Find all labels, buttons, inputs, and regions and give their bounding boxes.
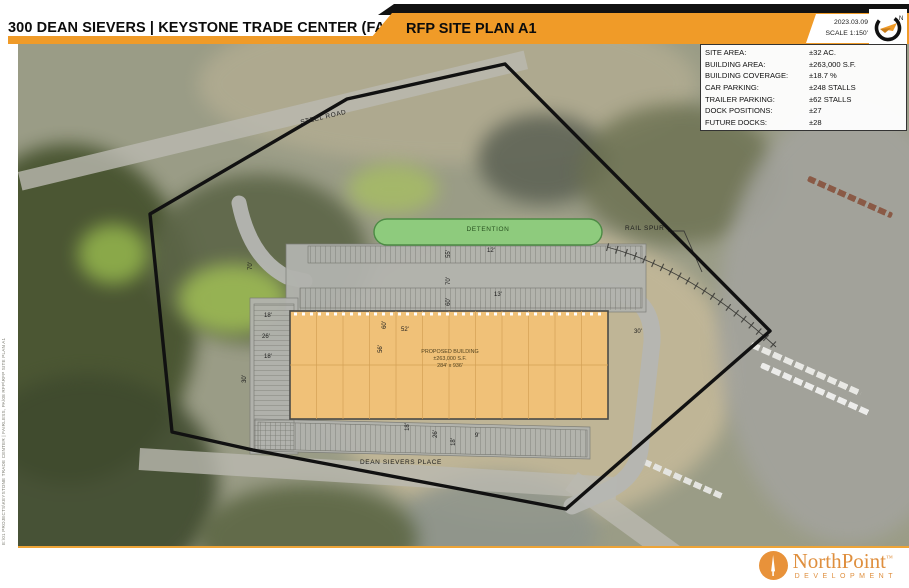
site-data-table: SITE AREA: ±32 AC. BUILDING AREA: ±263,0… [700,44,907,131]
plan-scale: SCALE 1:150' [826,29,868,39]
dim-label: 18' [405,423,411,431]
footer-bar: NorthPoint™ DEVELOPMENT [0,548,909,588]
dim-label: 26' [262,334,270,340]
plan-banner-text: RFP SITE PLAN A1 [406,21,537,37]
dim-label: 18' [264,313,272,319]
row-value: ±248 STALLS [809,83,856,92]
dim-label: 30' [242,375,248,383]
dim-label: 18' [264,354,272,360]
row-value: ±28 [809,118,822,127]
table-row: SITE AREA: ±32 AC. [701,47,906,59]
row-label: CAR PARKING: [701,83,809,92]
table-row: BUILDING COVERAGE: ±18.7 % [701,70,906,82]
dim-label: 70' [446,277,452,285]
dim-label: 55' [446,250,452,258]
row-value: ±263,000 S.F. [809,60,856,69]
row-label: DOCK POSITIONS: [701,106,809,115]
title-underline-bar [8,36,386,44]
row-label: BUILDING COVERAGE: [701,71,809,80]
dean-sievers-label: DEAN SIEVERS PLACE [360,459,442,466]
row-value: ±32 AC. [809,48,836,57]
dim-label: 9' [475,433,479,439]
row-value: ±62 STALLS [809,95,851,104]
sheet-file-note: E:\01 PROJECTS\KEYSTONE TRADE CENTER | F… [1,285,6,545]
northpoint-logo-text: NorthPoint™ DEVELOPMENT [793,551,897,580]
dim-label: 30' [634,329,642,335]
monument-icon [768,555,779,576]
rail-spur-label: RAIL SPUR [625,225,664,232]
row-label: BUILDING AREA: [701,60,809,69]
algae-patch-3 [348,164,438,214]
row-label: FUTURE DOCKS: [701,118,809,127]
date-scale-box: 2023.03.09 SCALE 1:150' [806,14,871,43]
dim-label: 70' [248,262,254,270]
table-row: DOCK POSITIONS: ±27 [701,105,906,117]
trademark-symbol: ™ [886,554,893,562]
brand-subtitle: DEVELOPMENT [795,573,897,580]
row-label: TRAILER PARKING: [701,95,809,104]
northpoint-logo-icon [759,551,788,580]
building-label-line1: PROPOSED BUILDING [395,349,505,356]
northpoint-logo: NorthPoint™ DEVELOPMENT [759,551,897,580]
building-label: PROPOSED BUILDING ±263,000 S.F. 284' x 9… [395,349,505,370]
dim-label: 18' [451,438,457,446]
dim-label: 60' [382,321,388,329]
table-row: CAR PARKING: ±248 STALLS [701,82,906,94]
table-row: BUILDING AREA: ±263,000 S.F. [701,59,906,71]
dim-label: 13' [494,292,502,298]
row-label: SITE AREA: [701,48,809,57]
north-letter: N [899,16,903,22]
row-value: ±27 [809,106,822,115]
north-arrow-icon: N [871,10,905,44]
sheet-title: 300 DEAN SIEVERS | KEYSTONE TRADE CENTER… [8,6,386,36]
dim-label: 26' [433,430,439,438]
building-label-line2: ±263,000 S.F. [395,356,505,363]
table-row: FUTURE DOCKS: ±28 [701,117,906,129]
algae-patch-1 [178,264,288,334]
dim-label: 52' [401,327,409,333]
woods-bottom-patch [198,484,418,546]
detention-label: DETENTION [374,226,602,233]
dim-label: 56' [378,345,384,353]
brand-name: NorthPoint™ [793,551,893,572]
building-label-line3: 284' x 936' [395,363,505,370]
north-arrow: N [869,9,907,45]
table-row: TRAILER PARKING: ±62 STALLS [701,93,906,105]
dim-label: 60' [446,298,452,306]
dim-label: 12' [487,248,495,254]
row-value: ±18.7 % [809,71,837,80]
algae-patch-2 [78,224,148,284]
plan-date: 2023.03.09 [834,18,868,28]
